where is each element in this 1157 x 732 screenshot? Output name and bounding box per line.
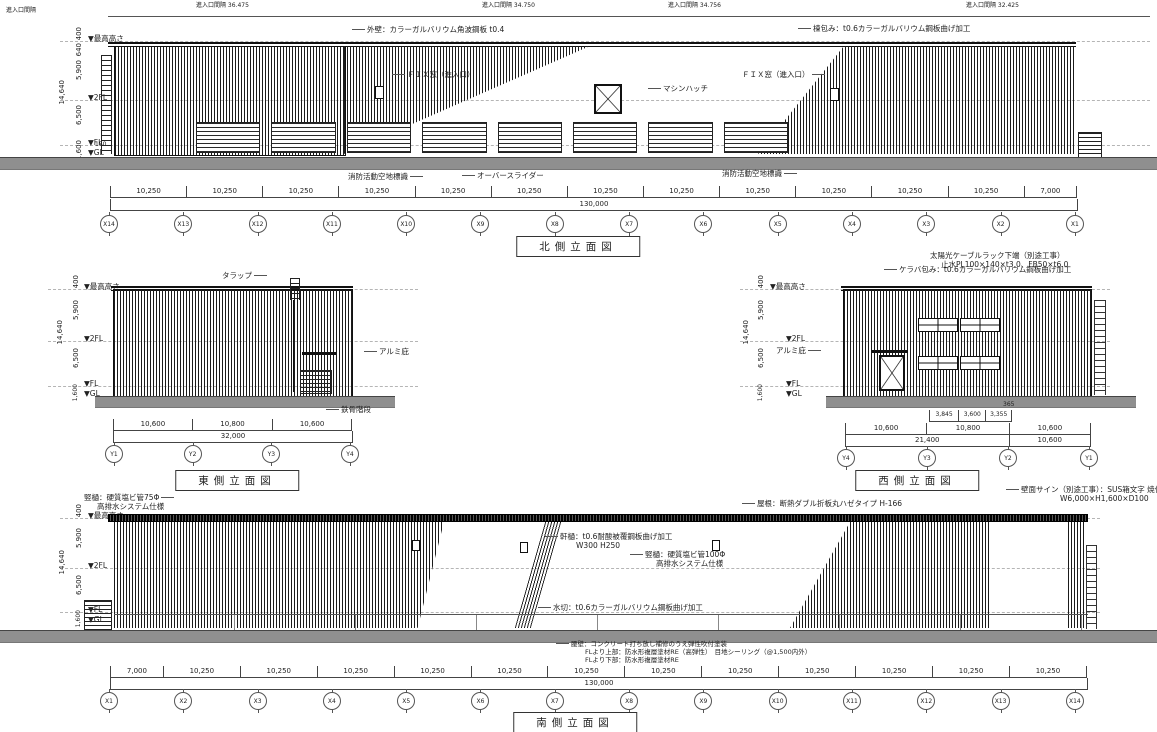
grid-bubble: X10 [769,692,787,710]
north-elevation-title: 北側立面図 [516,236,640,257]
grid-bubble: Y1 [1080,449,1098,467]
grid-bubble: X3 [249,692,267,710]
overhead-door [422,122,486,153]
north-fire-sign-right-annotation: 消防活動空地標識 [722,170,797,179]
grid-bubble: X12 [249,215,267,233]
grid-bubble: X13 [174,215,192,233]
west-window-lower-left [918,356,958,370]
dimension-segment: 3,600 [958,410,985,422]
north-top-dim-4: 進入口間隔 32.425 [966,3,1019,10]
elevation-drawing-sheet: 進入口間隔 進入口間隔 36.475 進入口間隔 34.750 進入口間隔 34… [0,0,1157,732]
east-vdim-total: 14,640 [56,320,64,345]
overhead-door [347,122,411,153]
grid-bubble: X6 [694,215,712,233]
grid-bubble: Y3 [262,445,280,463]
south-base-wall [114,614,1088,630]
dimension-segment: 10,250 [186,186,262,198]
grid-bubble: X1 [1066,215,1084,233]
grid-bubble: X14 [1066,692,1084,710]
dimension-segment: 10,250 [262,186,338,198]
south-vdim-1600: 1,600 [75,610,82,627]
dimension-segment: 10,250 [547,666,624,678]
dimension-segment: 10,250 [567,186,643,198]
west-vdim-6500: 6,500 [757,348,765,368]
dimension-segment: 10,250 [1009,666,1086,678]
dimension-segment: 10,250 [240,666,317,678]
dimension-segment: 10,250 [338,186,414,198]
north-fix-window-left-annotation: ＦＩＸ窓（進入口） [392,71,475,80]
grid-bubble: Y4 [837,449,855,467]
south-rack-graphic [1086,545,1097,629]
west-door-graphic [879,355,905,391]
grid-bubble: X14 [100,215,118,233]
south-wall-corrugated-end [1068,522,1084,628]
north-grid-bubbles: X14X13X12X11X10X9X8X7X6X5X4X3X2X1 [100,215,1084,233]
north-vdim-640: 640 [75,43,83,56]
west-level-label-2fl: ▼2FL [786,335,805,344]
east-awning-graphic [302,352,336,355]
dimension-segment: 10,250 [643,186,719,198]
east-vdim-6500: 6,500 [72,348,80,368]
north-vdim-5900: 5,900 [75,60,83,80]
grid-bubble: X6 [471,692,489,710]
east-bay-dimensions: 10,60010,80010,600 [113,419,352,431]
north-fix-window-right [830,88,839,101]
south-elevation-title: 南側立面図 [513,712,637,732]
dimension-segment: 10,600 [272,419,351,431]
grid-bubble: X9 [471,215,489,233]
south-vdim-400: 400 [75,504,83,517]
north-ladder-graphic [101,55,112,154]
east-vdim-400: 400 [72,275,80,288]
east-vdim-1600: 1,600 [72,384,79,401]
south-vdim-total: 14,640 [58,550,66,575]
grid-bubble: Y4 [341,445,359,463]
west-window-lower-right [960,356,1000,370]
dimension-segment: 7,000 [110,666,163,678]
dimension-segment: 10,600 [113,419,192,431]
east-level-label-fl: ▼FL [84,380,98,389]
north-vdim-400: 400 [75,27,83,40]
north-ridge-annotation: 棟包み：t0.6カラーガルバリウム鋼板曲げ加工 [798,25,970,34]
grid-bubble: X8 [620,692,638,710]
dimension-segment: 3,845 [929,410,958,422]
south-wall-sign-annotation-2: W6,000×H1,600×D100 [1060,495,1149,504]
north-top-dim-2: 進入口間隔 34.750 [482,3,535,10]
north-overhead-slider-annotation: オーバースライダー [462,172,544,181]
north-overhead-doors [196,122,788,153]
grid-bubble: X8 [546,215,564,233]
grid-bubble: X11 [323,215,341,233]
grid-bubble: X13 [992,692,1010,710]
west-bay-dimensions: 10,60010,80010,600 [845,423,1091,435]
dimension-segment: 10,250 [491,186,567,198]
grid-bubble: X10 [397,215,415,233]
west-vdim-400: 400 [757,275,765,288]
north-wall-annotation: 外壁：カラーガルバリウム角波鋼板 t0.4 [352,26,504,35]
grid-bubble: X11 [843,692,861,710]
south-eaves-annotation-2: W300 H250 [576,542,620,551]
overhead-door [724,122,788,153]
dimension-segment: 10,600 [1009,423,1090,435]
north-top-dim-1: 進入口間隔 36.475 [196,3,249,10]
north-fire-sign-left-annotation: 消防活動空地標識 [348,173,423,182]
east-stair-annotation: 鉄骨階段 [326,406,371,415]
east-roof-ladder-graphic [290,278,300,300]
south-roof-annotation: 屋根：断熱ダブル折板丸ハゼタイプ H-166 [742,500,902,509]
grid-bubble: Y2 [999,449,1017,467]
grid-bubble: Y2 [184,445,202,463]
grid-bubble: Y1 [105,445,123,463]
west-awning-graphic [872,350,908,353]
south-vdim-6500: 6,500 [75,575,83,595]
east-level-label-2fl: ▼2FL [84,335,103,344]
north-bay-dimensions: 10,25010,25010,25010,25010,25010,25010,2… [110,186,1077,198]
dimension-segment: 10,250 [948,186,1024,198]
north-ground [0,157,1157,170]
east-awning-annotation: アルミ庇 [364,348,409,357]
north-fix-window-left [375,86,384,99]
grid-bubble: X1 [100,692,118,710]
south-vdim-5900: 5,900 [75,528,83,548]
west-sub-small-dim: 365 [1003,402,1014,409]
east-vdim-5900: 5,900 [72,300,80,320]
grid-bubble: X4 [843,215,861,233]
south-downpipe-annotation-2: 高排水システム仕様 [656,560,723,569]
west-level-label-fl: ▼FL [786,380,800,389]
east-ladder-line [293,300,294,392]
dimension-segment: 10,800 [926,423,1009,435]
north-top-dim-line [108,16,1150,17]
south-window-1 [412,540,420,551]
south-stair-graphic [84,600,112,630]
south-level-label-2fl: ▼2FL [88,562,107,571]
west-window-upper-right [960,318,1000,332]
grid-bubble: X9 [694,692,712,710]
dimension-segment: 10,600 [845,423,926,435]
south-flashing-annotation: 水切：t0.6カラーガルバリウム鋼板曲げ加工 [538,604,703,613]
south-roof-band [108,514,1088,522]
west-vdim-total: 14,640 [742,320,750,345]
dimension-segment: 10,250 [394,666,471,678]
west-grid-bubbles: Y4Y3Y2Y1 [837,449,1098,467]
west-vdim-5900: 5,900 [757,300,765,320]
overhead-door [498,122,562,153]
east-trap-annotation: タラップ [222,272,267,281]
west-window-upper-left [918,318,958,332]
grid-bubble: X5 [769,215,787,233]
west-elevation-title: 西側立面図 [855,470,979,491]
dimension-segment: 10,250 [795,186,871,198]
dimension-segment: 10,250 [415,186,491,198]
grid-bubble: X4 [323,692,341,710]
west-awning-annotation: アルミ庇 [776,347,821,356]
dimension-segment: 10,250 [778,666,855,678]
south-wall-corrugated-left [114,522,444,628]
dimension-segment: 10,250 [932,666,1009,678]
overhead-door [196,122,260,153]
west-ground [826,396,1136,408]
west-level-label-gl: ▼GL [786,390,802,399]
west-cable-rack-graphic [1094,300,1106,395]
east-stair-graphic [300,370,332,394]
grid-bubble: X12 [917,692,935,710]
dimension-segment: 3,355 [985,410,1011,422]
north-fix-window-right-annotation: ＦＩＸ窓（進入口） [742,71,825,80]
east-grid-bubbles: Y1Y2Y3Y4 [105,445,359,463]
grid-bubble: X7 [620,215,638,233]
dimension-segment: 10,600 [1009,435,1091,447]
grid-bubble: X7 [546,692,564,710]
north-total-dimension: 130,000 [110,199,1078,211]
dimension-segment: 10,250 [317,666,394,678]
dimension-segment: 10,250 [719,186,795,198]
west-sub-dimensions: 3,8453,6003,355 [929,410,1012,422]
overhead-door [573,122,637,153]
grid-bubble: X2 [174,692,192,710]
dimension-segment: 10,250 [701,666,778,678]
south-bay-dimensions: 7,00010,25010,25010,25010,25010,25010,25… [110,666,1087,678]
dimension-segment: 10,250 [855,666,932,678]
dimension-segment: 7,000 [1024,186,1076,198]
west-solar-annotation-2: 止水PL100×140×t3.0、FB50×t6.0 [941,261,1068,270]
west-total-dimensions: 21,40010,600 [845,435,1091,447]
north-wall-corrugated-right [758,46,1076,154]
west-level-label-top: ▼最高高さ [770,283,806,292]
overhead-door [648,122,712,153]
south-wall-corrugated-right [790,522,990,628]
north-vdim-total: 14,640 [58,80,66,105]
dimension-segment: 10,800 [192,419,272,431]
grid-bubble: X2 [992,215,1010,233]
north-stair-graphic [1078,132,1102,158]
north-vdim-6500: 6,500 [75,105,83,125]
dimension-segment: 10,250 [110,186,186,198]
north-machine-hatch-graphic [594,84,622,114]
east-total-dimension: 32,000 [113,431,353,443]
grid-bubble: Y3 [918,449,936,467]
grid-bubble: X3 [917,215,935,233]
dimension-segment: 10,250 [871,186,947,198]
south-base-annotation-3: FLより下部：防水形複層塗材RE [585,657,679,664]
dimension-segment: 10,250 [163,666,240,678]
west-vdim-1600: 1,600 [757,384,764,401]
south-window-2 [520,542,528,553]
south-grid-bubbles: X1X2X3X4X5X6X7X8X9X10X11X12X13X14 [100,692,1084,710]
north-top-dim-3: 進入口間隔 34.756 [668,3,721,10]
dimension-segment: 10,250 [471,666,548,678]
grid-bubble: X5 [397,692,415,710]
dimension-segment: 10,250 [624,666,701,678]
north-entry-dim-label: 進入口間隔 [6,8,36,15]
north-machine-hatch-annotation: マシンハッチ [648,85,708,94]
east-elevation-title: 東側立面図 [175,470,299,491]
overhead-door [271,122,335,153]
